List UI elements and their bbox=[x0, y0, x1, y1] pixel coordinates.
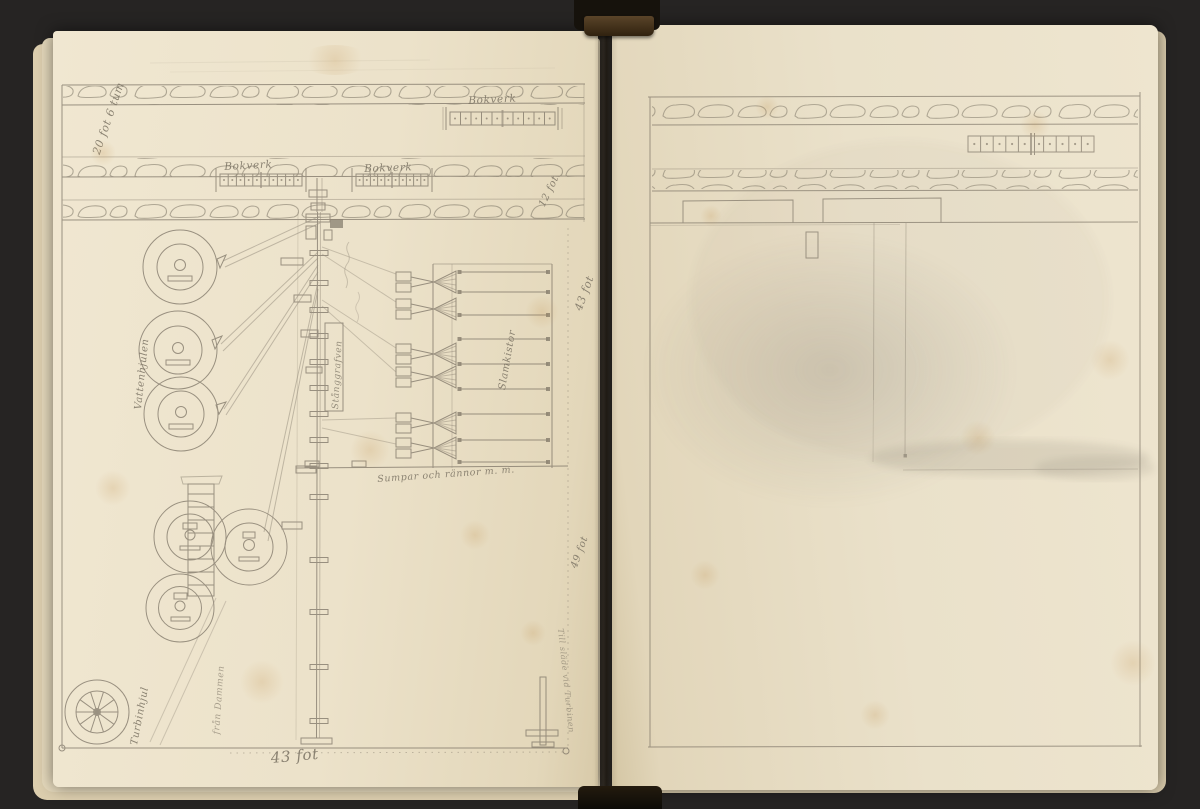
sketchbook-photo: 20 fot 6 tum Bokverk Bokverk Bokverk 12 … bbox=[0, 0, 1200, 809]
waterwheel-6 bbox=[146, 574, 214, 642]
paper-stain bbox=[1020, 110, 1050, 140]
paper-stain bbox=[300, 45, 370, 75]
paper-stain bbox=[350, 430, 390, 470]
label-bokverk-mid-right: Bokverk bbox=[364, 161, 413, 175]
section-marker bbox=[526, 677, 558, 747]
masonry-band-right-1 bbox=[652, 101, 1138, 125]
scale-bar-top bbox=[443, 107, 562, 130]
paper-stain bbox=[90, 140, 116, 166]
paper-stain bbox=[690, 560, 720, 590]
flume-ladder bbox=[181, 476, 222, 596]
paper-stain bbox=[520, 620, 546, 646]
paper-stain bbox=[1090, 340, 1130, 380]
binding-tape-icon bbox=[584, 16, 654, 36]
paper-stain bbox=[460, 520, 490, 550]
paper-stain bbox=[95, 470, 131, 506]
paper-stain bbox=[700, 205, 722, 227]
binding-bottom bbox=[578, 786, 662, 809]
waterwheel-1 bbox=[143, 230, 226, 304]
paper-stain bbox=[1110, 640, 1156, 686]
waterwheel-5 bbox=[211, 509, 287, 585]
graphite-smudge bbox=[640, 230, 1020, 510]
paper-stain bbox=[860, 700, 890, 730]
label-bokverk-mid-left: Bokverk bbox=[224, 158, 273, 173]
turbine-wheel bbox=[65, 680, 129, 744]
masonry-band-2 bbox=[62, 156, 585, 177]
label-bokverk-top: Bokverk bbox=[468, 92, 517, 107]
paper-stain bbox=[525, 295, 559, 329]
waterwheel-4 bbox=[154, 501, 226, 573]
paper-stain bbox=[755, 95, 779, 119]
drive-lines bbox=[221, 216, 320, 541]
book-gutter bbox=[594, 26, 618, 794]
paper-stain bbox=[240, 660, 284, 704]
